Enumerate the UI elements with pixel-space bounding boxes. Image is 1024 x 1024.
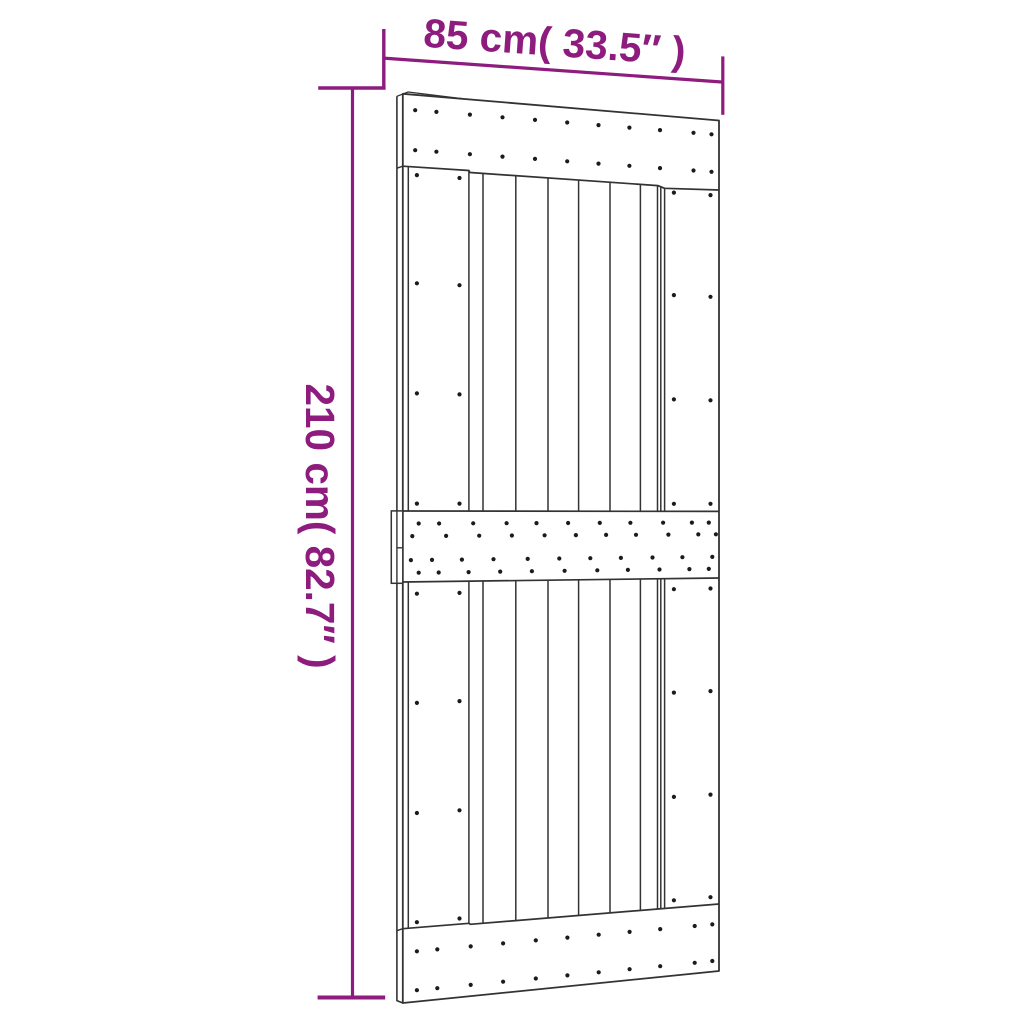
svg-text:210 cm( 82.7″ ): 210 cm( 82.7″ )	[297, 384, 343, 669]
